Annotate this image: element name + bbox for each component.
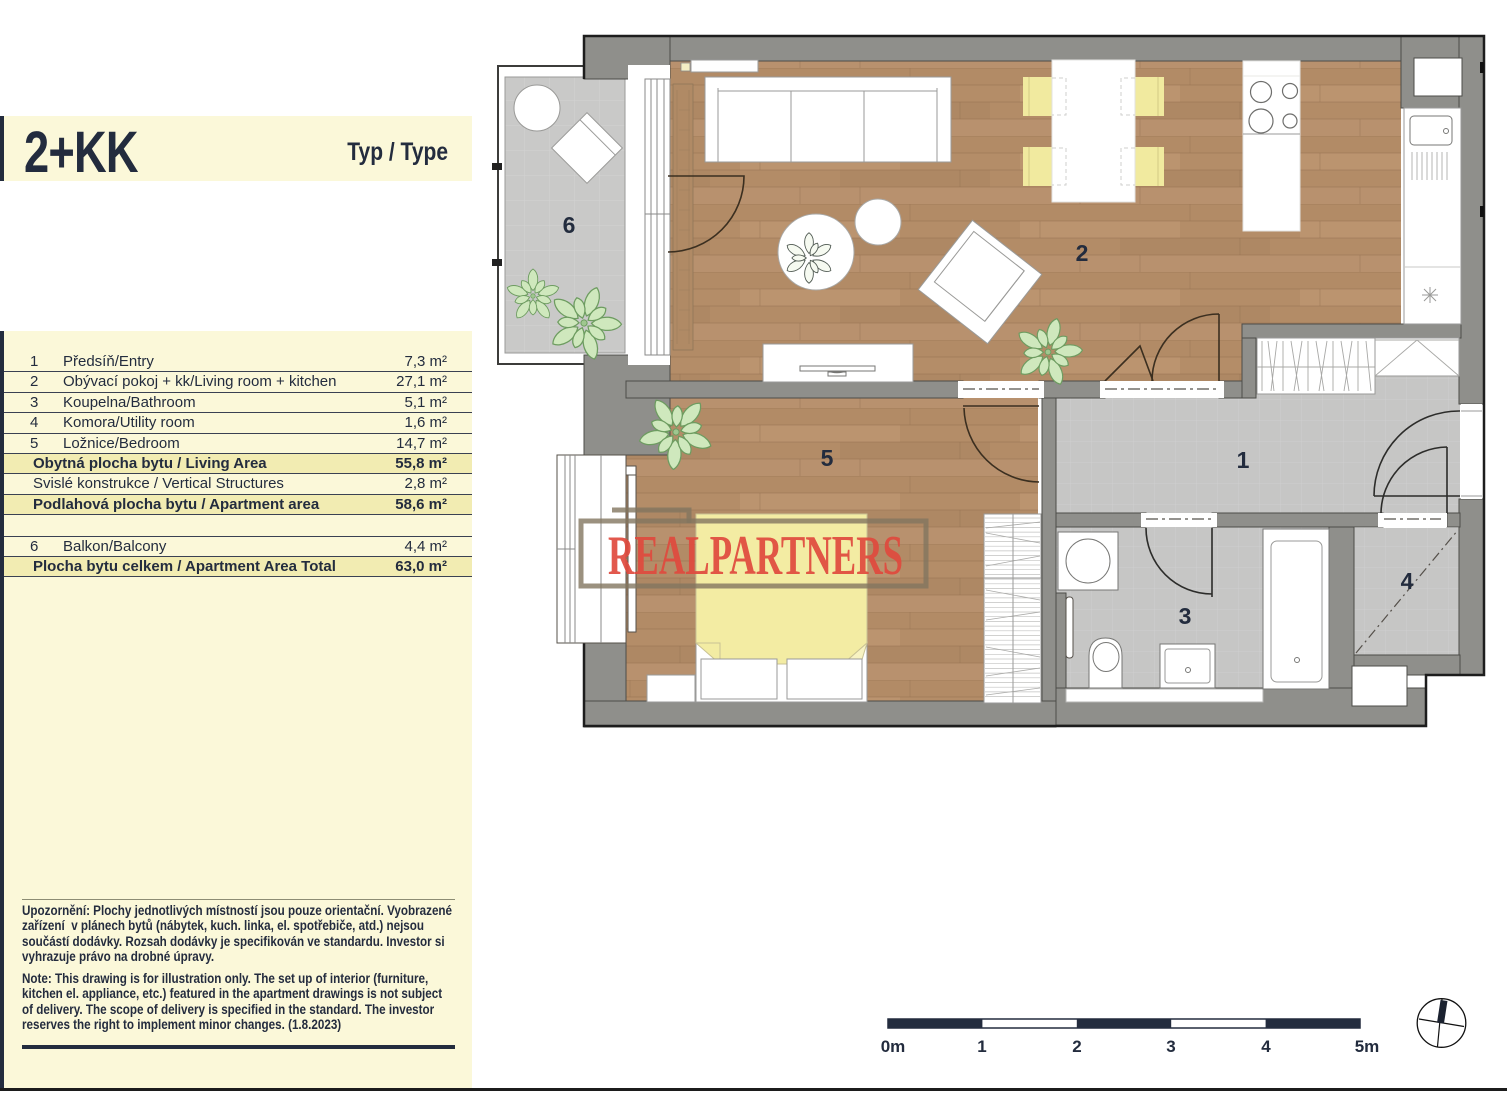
svg-text:6: 6 — [563, 212, 576, 238]
svg-text:1: 1 — [977, 1037, 986, 1056]
svg-text:REALPARTNERS: REALPARTNERS — [608, 525, 903, 587]
svg-text:5m: 5m — [1355, 1037, 1380, 1056]
svg-text:2: 2 — [1072, 1037, 1081, 1056]
svg-text:3: 3 — [1179, 603, 1192, 629]
svg-text:2: 2 — [1076, 240, 1089, 266]
svg-text:1: 1 — [1237, 447, 1250, 473]
svg-text:4: 4 — [1261, 1037, 1271, 1056]
svg-text:4: 4 — [1401, 568, 1414, 594]
svg-text:3: 3 — [1166, 1037, 1175, 1056]
svg-text:5: 5 — [821, 445, 834, 471]
svg-text:0m: 0m — [881, 1037, 906, 1056]
